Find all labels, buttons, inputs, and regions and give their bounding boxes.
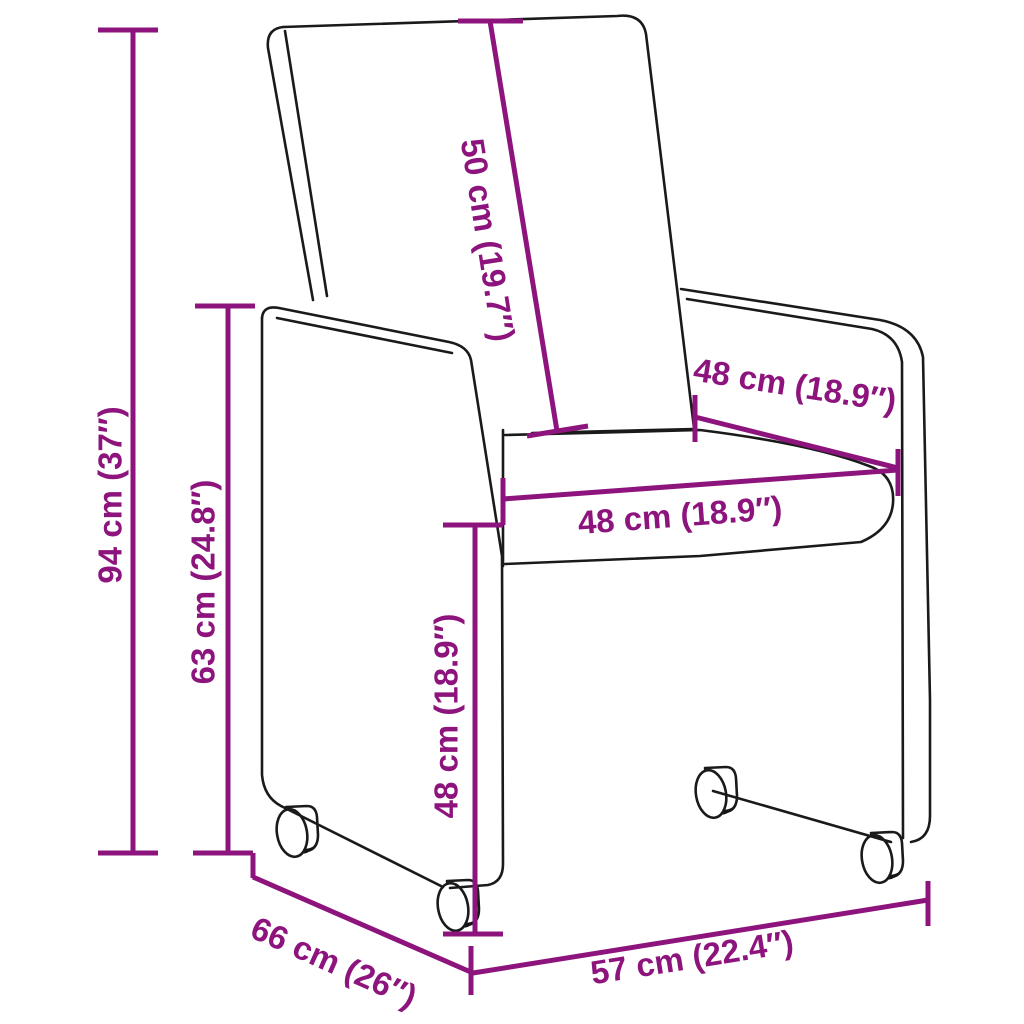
dim-depth: 66 cm (26″) (246, 853, 473, 1015)
dim-depth-label: 66 cm (26″) (246, 909, 423, 1015)
dim-armrest-depth-label: 48 cm (18.9″) (691, 351, 899, 420)
dim-seat-width: 48 cm (18.9″) (443, 470, 898, 541)
dim-armrest-height: 63 cm (24.8″) (185, 306, 256, 853)
dim-seat-width-label: 48 cm (18.9″) (577, 489, 784, 541)
dim-total-height-label: 94 cm (37″) (92, 406, 129, 583)
dim-seat-height: 48 cm (18.9″) (428, 525, 504, 934)
dim-seat-height-label: 48 cm (18.9″) (428, 614, 465, 819)
caster-middle (692, 767, 737, 820)
dimension-lines: 94 cm (37″) 63 cm (24.8″) 50 cm (19.7″) … (92, 21, 929, 1015)
chair-dimension-diagram: 94 cm (37″) 63 cm (24.8″) 50 cm (19.7″) … (0, 0, 1024, 1024)
dim-width-label: 57 cm (22.4″) (588, 923, 796, 992)
diagram-canvas: 94 cm (37″) 63 cm (24.8″) 50 cm (19.7″) … (0, 0, 1024, 1024)
dim-width: 57 cm (22.4″) (473, 881, 928, 991)
left-armrest-panel (262, 307, 503, 888)
dim-total-height: 94 cm (37″) (92, 30, 159, 853)
dim-armrest-height-label: 63 cm (24.8″) (185, 480, 222, 685)
